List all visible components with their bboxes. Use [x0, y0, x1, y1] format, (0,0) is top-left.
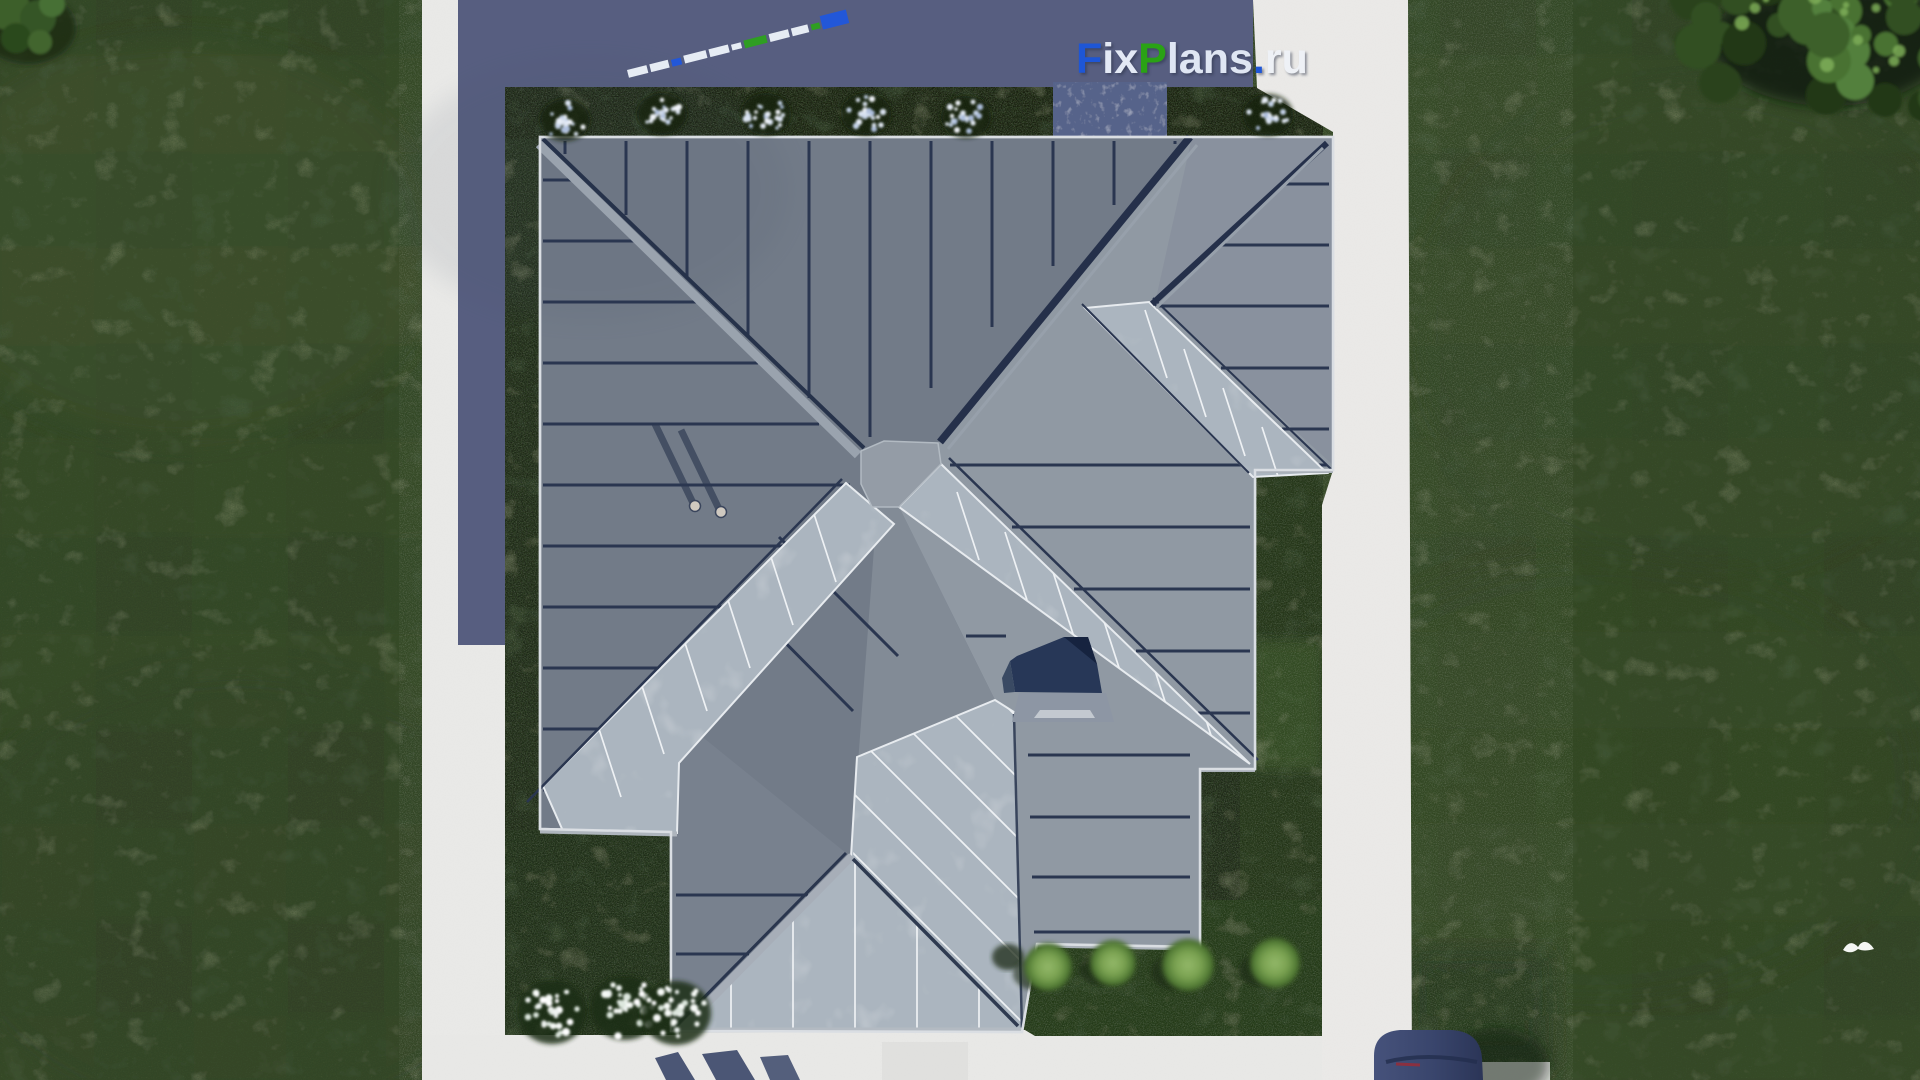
svg-text:FixPlans.ru: FixPlans.ru	[1076, 35, 1308, 83]
